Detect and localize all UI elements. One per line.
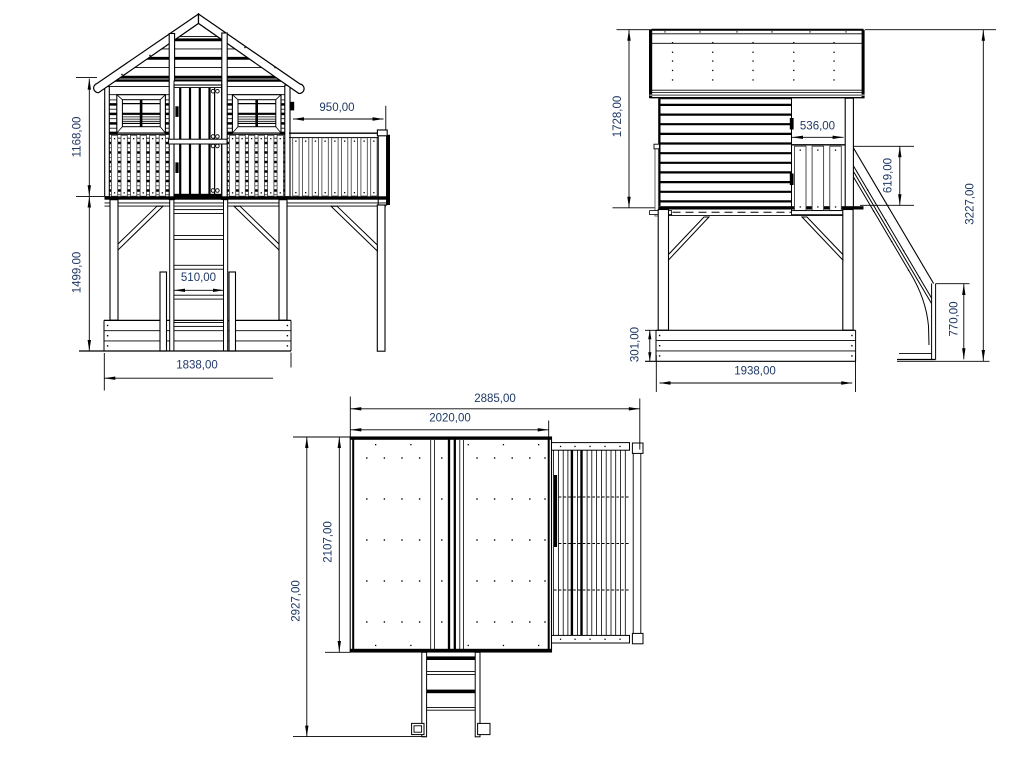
- svg-text:1168,00: 1168,00: [72, 117, 84, 158]
- svg-text:510,00: 510,00: [181, 272, 216, 284]
- svg-text:1838,00: 1838,00: [176, 360, 218, 372]
- svg-text:3227,00: 3227,00: [965, 183, 977, 225]
- svg-text:2927,00: 2927,00: [291, 580, 303, 622]
- svg-text:950,00: 950,00: [319, 102, 354, 114]
- svg-text:301,00: 301,00: [630, 327, 642, 362]
- svg-text:770,00: 770,00: [949, 301, 961, 336]
- svg-text:1938,00: 1938,00: [734, 366, 776, 378]
- svg-text:619,00: 619,00: [883, 158, 895, 193]
- svg-text:536,00: 536,00: [800, 120, 835, 132]
- svg-text:2020,00: 2020,00: [429, 413, 471, 425]
- svg-text:2107,00: 2107,00: [323, 521, 335, 563]
- svg-text:2885,00: 2885,00: [474, 393, 516, 405]
- svg-text:1728,00: 1728,00: [612, 96, 624, 138]
- svg-text:1499,00: 1499,00: [72, 252, 84, 294]
